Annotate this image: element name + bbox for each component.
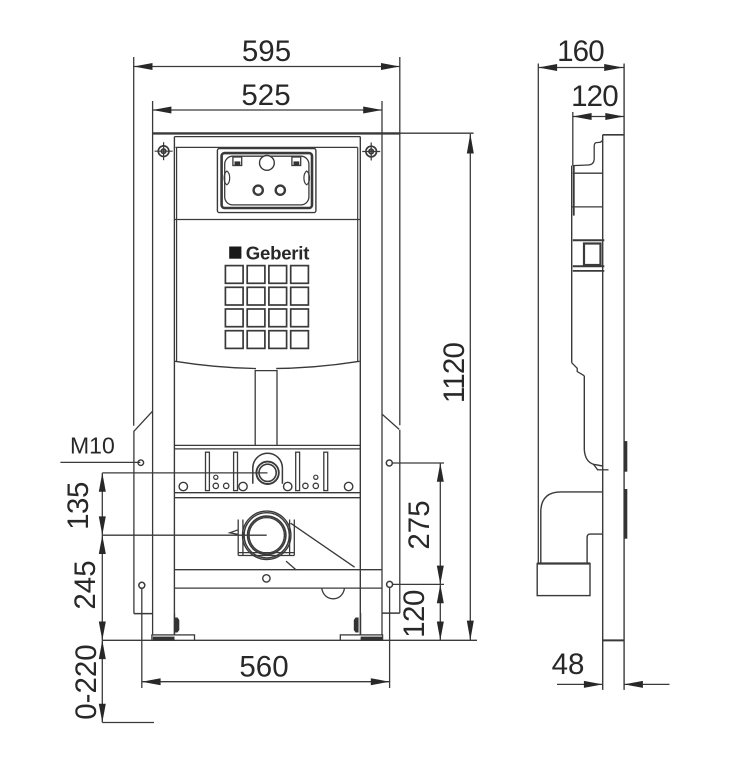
svg-text:525: 525 <box>241 79 290 112</box>
svg-text:560: 560 <box>239 651 288 684</box>
svg-text:275: 275 <box>403 500 436 549</box>
svg-text:48: 48 <box>552 648 585 681</box>
svg-text:245: 245 <box>69 560 102 609</box>
svg-text:120: 120 <box>571 80 618 113</box>
svg-text:Geberit: Geberit <box>246 243 309 264</box>
svg-text:120: 120 <box>398 590 431 638</box>
svg-text:0-220: 0-220 <box>70 644 103 719</box>
svg-text:135: 135 <box>62 482 95 530</box>
svg-text:595: 595 <box>242 35 291 68</box>
svg-text:M10: M10 <box>70 433 115 459</box>
svg-text:1120: 1120 <box>438 342 471 403</box>
svg-text:160: 160 <box>557 35 604 68</box>
